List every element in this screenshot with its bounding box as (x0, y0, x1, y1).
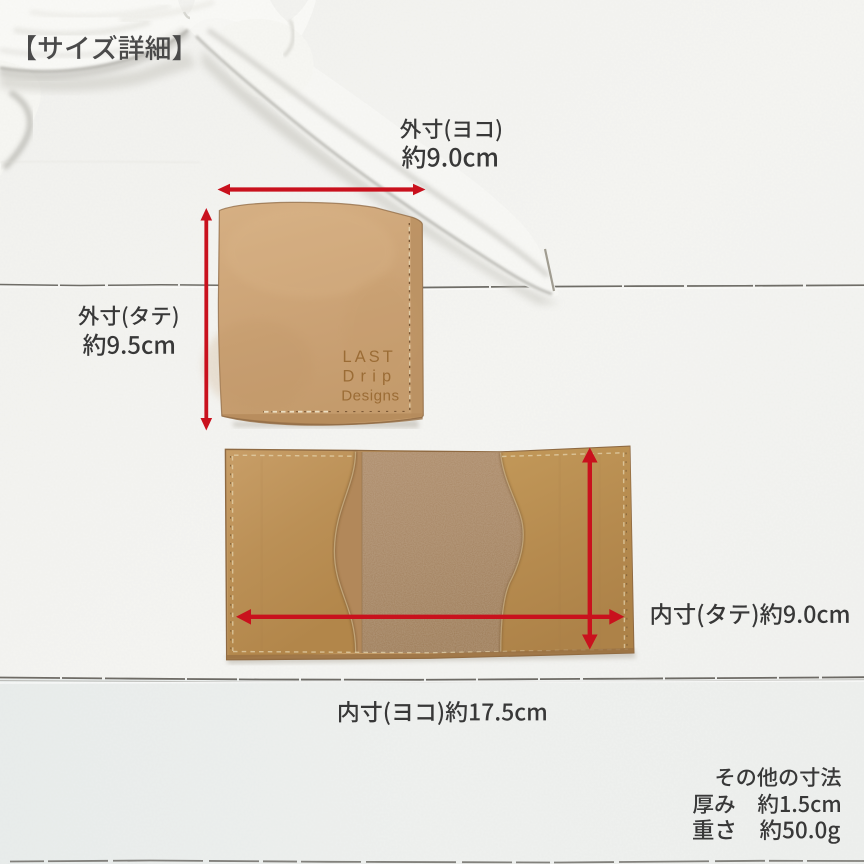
svg-text:Drip: Drip (343, 367, 398, 385)
svg-text:LAST: LAST (343, 348, 396, 366)
svg-text:Designs: Designs (341, 388, 399, 405)
